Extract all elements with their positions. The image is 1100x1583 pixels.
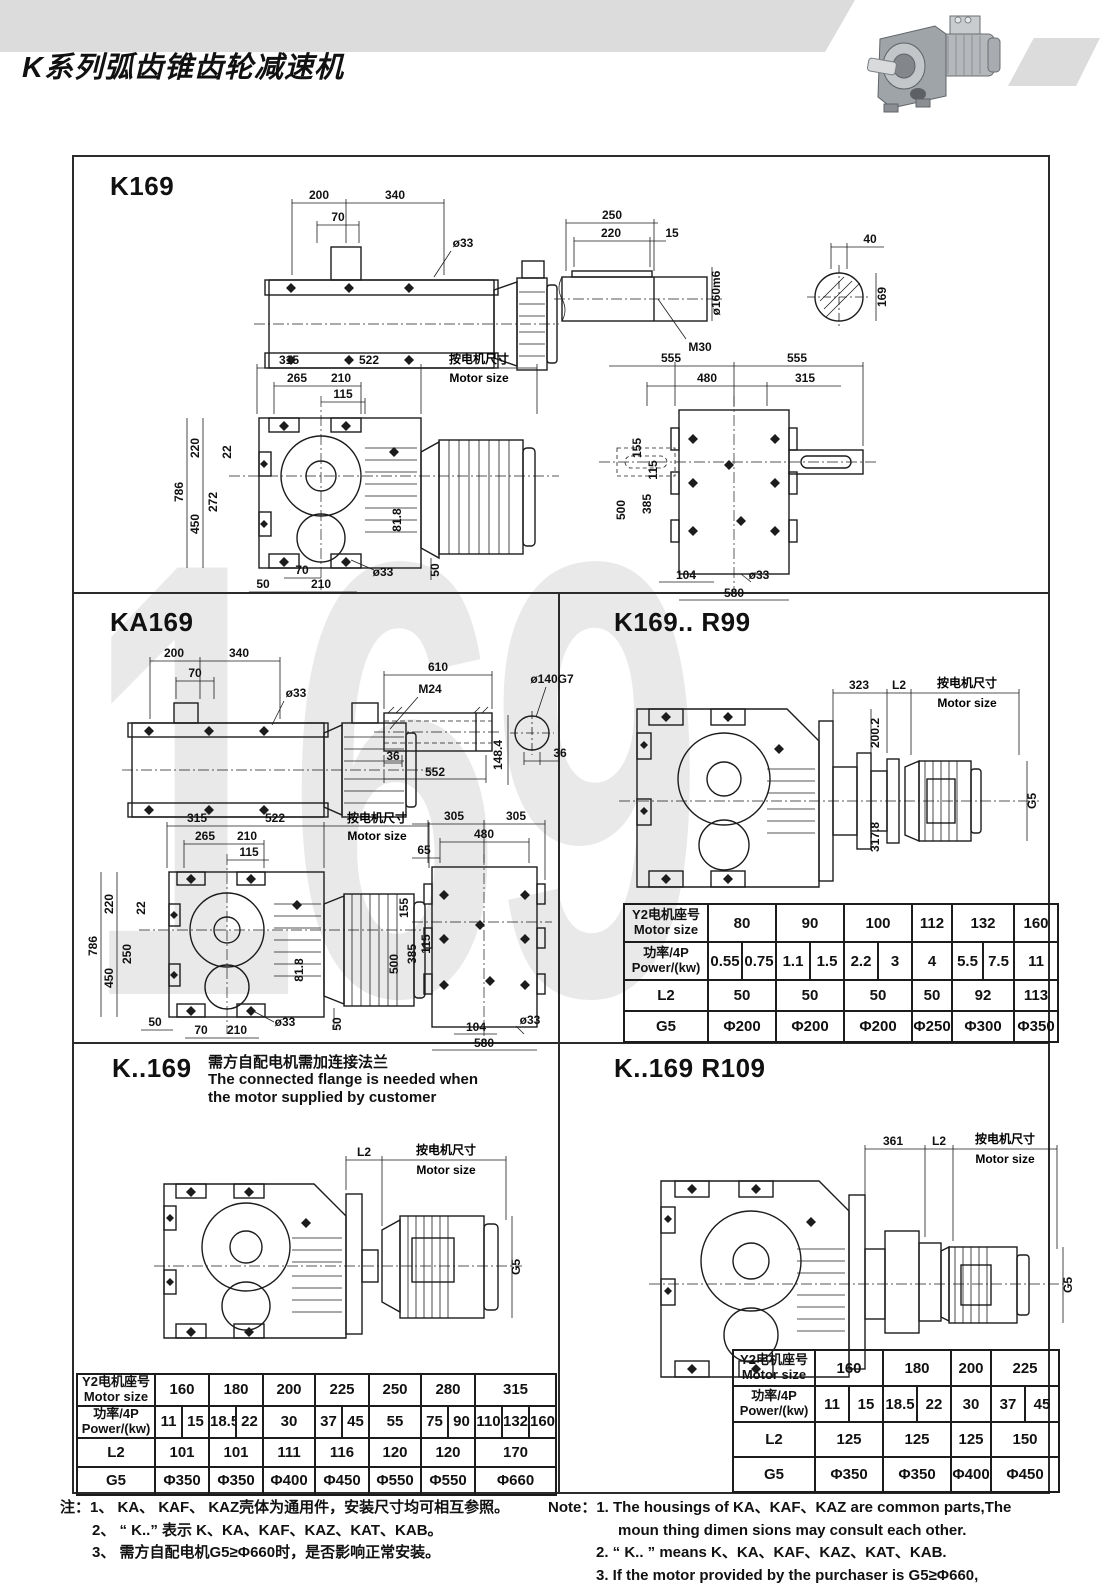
- motor-size-value: 112: [912, 904, 952, 942]
- dim-label: 70: [295, 563, 309, 577]
- motor-size-label-en: Motor size: [449, 371, 509, 385]
- header-g5: G5: [733, 1457, 815, 1492]
- k169-top-geometry: [599, 362, 879, 600]
- dim-label: 50: [256, 577, 270, 591]
- r109-geometry: [649, 1145, 1069, 1377]
- header-power: 功率/4PPower/(kw): [77, 1406, 155, 1438]
- dim-label: 115: [239, 845, 259, 859]
- dim-label: 220: [102, 894, 116, 914]
- dim-label: 70: [194, 1023, 208, 1037]
- g5-value: Φ300: [952, 1011, 1014, 1042]
- dim-label: 155: [630, 438, 644, 458]
- dim-label: 480: [697, 371, 717, 385]
- section-title-r99: K169.. R99: [614, 607, 751, 638]
- section-title-kcustom: K..169: [112, 1053, 192, 1084]
- dim-label: 500: [387, 954, 401, 974]
- kcustom-geometry: [154, 1156, 522, 1338]
- footnote-zh-line3: 3、 需方自配电机G5≥Φ660时，是否影响正常安装。: [60, 1542, 509, 1565]
- power-value: 37: [315, 1406, 342, 1438]
- power-value: 45: [342, 1406, 369, 1438]
- g5-value: Φ400: [263, 1467, 315, 1495]
- header-motor-size: Y2电机座号Motor size: [77, 1374, 155, 1406]
- dim-label: 70: [331, 210, 345, 224]
- dim-label: 50: [428, 563, 442, 577]
- g5-value: Φ350: [209, 1467, 263, 1495]
- r99-drawing: 323 L2 按电机尺寸 Motor size 200.2 317.8 G5: [619, 649, 1049, 909]
- dim-label: 22: [220, 445, 234, 459]
- motor-size-value: 225: [315, 1374, 369, 1406]
- r99-spec-table: Y2电机座号Motor size 80 90 100 112 132 160 功…: [623, 903, 1059, 1043]
- ka169-shaft-geometry: [374, 671, 560, 785]
- dim-label: L2: [932, 1134, 946, 1148]
- dim-label: 272: [206, 492, 220, 512]
- power-value: 11: [815, 1386, 849, 1422]
- motor-size-value: 100: [844, 904, 912, 942]
- ka169-top-view-drawing: 305 305 480 65 155 385 115 500 104 ø33 5…: [392, 812, 557, 1057]
- k169-side-geometry: [254, 199, 559, 370]
- g5-value: Φ350: [815, 1457, 883, 1492]
- header-l2: L2: [77, 1438, 155, 1467]
- dim-label: ø33: [275, 1015, 296, 1029]
- power-value: 15: [849, 1386, 883, 1422]
- dim-label: ø33: [749, 568, 770, 582]
- dim-label: ø140G7: [530, 672, 574, 686]
- dim-label: 200: [164, 646, 184, 660]
- dim-label: 22: [134, 901, 148, 915]
- l2-value: 150: [991, 1422, 1059, 1457]
- footnote-en-line1b: moun thing dimen sions may consult each …: [548, 1520, 1011, 1543]
- header-l2: L2: [624, 980, 708, 1011]
- kcustom-drawing: L2 按电机尺寸 Motor size G5: [154, 1142, 524, 1357]
- dim-label: ø33: [373, 565, 394, 579]
- power-value: 18.5: [883, 1386, 917, 1422]
- motor-size-value: 90: [776, 904, 844, 942]
- power-value: 4: [912, 942, 952, 980]
- power-value: 5.5: [952, 942, 983, 980]
- section-title-k169: K169: [110, 171, 174, 202]
- footnote-en-line2: 2. “ K.. ” means K、KA、KAF、KAZ、KAT、KAB.: [548, 1542, 1011, 1565]
- l2-value: 101: [155, 1438, 209, 1467]
- section-title-r109: K..169 R109: [614, 1053, 765, 1084]
- g5-value: Φ200: [844, 1011, 912, 1042]
- l2-value: 125: [951, 1422, 991, 1457]
- gearmotor-illustration: [867, 16, 1000, 112]
- dim-label: 50: [148, 1015, 162, 1029]
- dim-label: 786: [86, 936, 100, 956]
- header-g5: G5: [77, 1467, 155, 1495]
- g5-value: Φ350: [883, 1457, 951, 1492]
- g5-value: Φ250: [912, 1011, 952, 1042]
- k169-side-view-drawing: 200 340 70 ø33: [229, 185, 559, 380]
- power-value: 30: [263, 1406, 315, 1438]
- page-title: K系列弧齿锥齿轮减速机: [22, 44, 344, 86]
- dim-label: 104: [466, 1020, 486, 1034]
- l2-value: 170: [475, 1438, 556, 1467]
- motor-size-value: 160: [155, 1374, 209, 1406]
- motor-size-value: 200: [263, 1374, 315, 1406]
- power-value: 75: [421, 1406, 448, 1438]
- header-band-right: [1008, 38, 1100, 86]
- g5-value: Φ350: [1014, 1011, 1058, 1042]
- power-value: 11: [155, 1406, 182, 1438]
- motor-size-value: 132: [952, 904, 1014, 942]
- dim-label: 115: [333, 387, 353, 401]
- kcustom-note-en-line2: the motor supplied by customer: [208, 1089, 478, 1107]
- dim-label: 115: [646, 460, 660, 480]
- l2-value: 50: [912, 980, 952, 1011]
- dim-label: 450: [188, 514, 202, 534]
- dim-label: 210: [311, 577, 331, 591]
- power-value: 22: [236, 1406, 263, 1438]
- k169-top-view-drawing: 555 555 480 315 155 115 385 500 104 ø33 …: [579, 352, 919, 607]
- motor-size-value: 80: [708, 904, 776, 942]
- power-value: 11: [1014, 942, 1058, 980]
- dim-label: 210: [227, 1023, 247, 1037]
- dim-label: 250: [120, 944, 134, 964]
- header-g5: G5: [624, 1011, 708, 1042]
- dim-label: 155: [397, 898, 411, 918]
- dim-label: 220: [601, 226, 621, 240]
- dim-label: 340: [385, 188, 405, 202]
- l2-value: 125: [815, 1422, 883, 1457]
- motor-size-label-zh: 按电机尺寸: [416, 1142, 476, 1157]
- k169-shaft-detail-drawing: 250 220 15 ø160m6 M30 40 169: [554, 197, 934, 362]
- dim-label: 50: [330, 1017, 344, 1031]
- kcustom-note-zh: 需方自配电机需加连接法兰: [208, 1051, 388, 1072]
- dim-label: 148.4: [491, 740, 505, 770]
- ka169-front-geometry: [101, 822, 429, 1038]
- dim-label: 265: [287, 371, 307, 385]
- power-value: 0.75: [742, 942, 776, 980]
- dim-label: M24: [418, 682, 442, 696]
- dim-label: 81.8: [390, 508, 404, 532]
- dim-label: L2: [892, 678, 906, 692]
- dim-label: 610: [428, 660, 448, 674]
- motor-size-value: 160: [1014, 904, 1058, 942]
- g5-value: Φ200: [776, 1011, 844, 1042]
- power-value: 18.5: [209, 1406, 236, 1438]
- motor-size-value: 225: [991, 1350, 1059, 1386]
- dim-label: 305: [506, 809, 526, 823]
- dim-label: 385: [405, 944, 419, 964]
- motor-size-label-en: Motor size: [937, 696, 997, 710]
- l2-value: 113: [1014, 980, 1058, 1011]
- power-value: 22: [917, 1386, 951, 1422]
- catalog-page: K系列弧齿锥齿轮减速机 169 K169: [0, 0, 1100, 1583]
- header-motor-size: Y2电机座号Motor size: [624, 904, 708, 942]
- l2-value: 92: [952, 980, 1014, 1011]
- power-value: 160: [529, 1406, 556, 1438]
- dim-label: 315: [279, 353, 299, 367]
- l2-value: 50: [776, 980, 844, 1011]
- motor-size-label-en: Motor size: [416, 1163, 476, 1177]
- dim-label: 65: [417, 843, 431, 857]
- dim-label: 522: [359, 353, 379, 367]
- power-value: 30: [951, 1386, 991, 1422]
- dim-label: 385: [640, 494, 654, 514]
- ka169-front-view-drawing: 315 522 按电机尺寸 Motor size 265 210 115 786…: [89, 812, 429, 1042]
- dim-label: 500: [614, 500, 628, 520]
- g5-value: Φ200: [708, 1011, 776, 1042]
- dim-label: 210: [237, 829, 257, 843]
- dim-label: 315: [795, 371, 815, 385]
- motor-size-value: 250: [369, 1374, 421, 1406]
- motor-size-value: 315: [475, 1374, 556, 1406]
- motor-size-label-en: Motor size: [975, 1152, 1035, 1166]
- g5-value: Φ550: [421, 1467, 475, 1495]
- dim-label: 317.8: [868, 822, 882, 852]
- footnote-zh-line2: 2、 “ K..” 表示 K、KA、KAF、KAZ、KAT、KAB。: [60, 1520, 509, 1543]
- footnote-en-line3: 3. If the motor provided by the purchase…: [548, 1565, 1011, 1583]
- k169-front-view-drawing: 315 522 按电机尺寸 Motor size 265 210 115 786…: [169, 352, 569, 597]
- power-value: 1.5: [810, 942, 844, 980]
- dim-label: 36: [386, 749, 400, 763]
- dim-label: 361: [883, 1134, 903, 1148]
- g5-value: Φ660: [475, 1467, 556, 1495]
- dim-label: 265: [195, 829, 215, 843]
- dim-label: 552: [425, 765, 445, 779]
- dim-label: 200.2: [868, 718, 882, 748]
- power-value: 45: [1025, 1386, 1059, 1422]
- ka169-shaft-detail-drawing: 610 M24 36 552 ø140G7 36 148.4: [374, 655, 574, 805]
- dim-label: 340: [229, 646, 249, 660]
- power-value: 15: [182, 1406, 209, 1438]
- dim-label: 40: [863, 232, 877, 246]
- dim-label: G5: [1061, 1277, 1075, 1293]
- l2-value: 50: [844, 980, 912, 1011]
- dim-label: 555: [787, 351, 807, 365]
- dim-label: 210: [331, 371, 351, 385]
- dim-label: G5: [509, 1259, 523, 1275]
- power-value: 55: [369, 1406, 421, 1438]
- dim-label: 70: [188, 666, 202, 680]
- power-value: 37: [991, 1386, 1025, 1422]
- l2-value: 50: [708, 980, 776, 1011]
- l2-value: 116: [315, 1438, 369, 1467]
- dim-label: 786: [172, 482, 186, 502]
- dim-label: ø160m6: [709, 270, 723, 315]
- motor-size-value: 200: [951, 1350, 991, 1386]
- g5-value: Φ450: [991, 1457, 1059, 1492]
- dim-label: 555: [661, 351, 681, 365]
- dim-label: 250: [602, 208, 622, 222]
- dim-label: 15: [665, 226, 679, 240]
- motor-size-value: 180: [209, 1374, 263, 1406]
- l2-value: 125: [883, 1422, 951, 1457]
- power-value: 7.5: [983, 942, 1014, 980]
- motor-size-label-zh: 按电机尺寸: [975, 1131, 1035, 1146]
- dim-label: 580: [724, 586, 744, 600]
- dim-label: 305: [444, 809, 464, 823]
- l2-value: 111: [263, 1438, 315, 1467]
- header-power: 功率/4PPower/(kw): [624, 942, 708, 980]
- power-value: 0.55: [708, 942, 742, 980]
- power-value: 2.2: [844, 942, 878, 980]
- g5-value: Φ450: [315, 1467, 369, 1495]
- l2-value: 120: [421, 1438, 475, 1467]
- footnote-zh-line1: 注：1、 KA、 KAF、 KAZ壳体为通用件，安装尺寸均可相互参照。: [60, 1497, 509, 1520]
- motor-size-label-zh: 按电机尺寸: [449, 351, 509, 366]
- dim-label: 450: [102, 968, 116, 988]
- l2-value: 120: [369, 1438, 421, 1467]
- r109-spec-table: Y2电机座号Motor size 160 180 200 225 功率/4PPo…: [732, 1349, 1060, 1493]
- content-frame: K169: [72, 155, 1050, 1494]
- gearmotor-photo: [850, 4, 1010, 119]
- dim-label: 522: [265, 811, 285, 825]
- kcustom-note-en: The connected flange is needed when the …: [208, 1071, 478, 1107]
- motor-size-value: 160: [815, 1350, 883, 1386]
- power-value: 132: [502, 1406, 529, 1438]
- dim-label: ø33: [520, 1013, 541, 1027]
- motor-size-label-zh: 按电机尺寸: [937, 675, 997, 690]
- dim-label: 580: [474, 1036, 494, 1050]
- g5-value: Φ400: [951, 1457, 991, 1492]
- dim-label: 323: [849, 678, 869, 692]
- motor-size-value: 280: [421, 1374, 475, 1406]
- footnotes-en: Note：1. The housings of KA、KAF、KAZ are c…: [548, 1497, 1011, 1583]
- dim-label: ø33: [453, 236, 474, 250]
- g5-value: Φ550: [369, 1467, 421, 1495]
- dim-label: 81.8: [292, 958, 306, 982]
- g5-value: Φ350: [155, 1467, 209, 1495]
- l2-value: 101: [209, 1438, 263, 1467]
- section-title-ka169: KA169: [110, 607, 193, 638]
- power-value: 110: [475, 1406, 502, 1438]
- dim-label: ø33: [286, 686, 307, 700]
- r99-geometry: [619, 689, 1039, 887]
- dim-label: 169: [875, 287, 889, 307]
- power-value: 1.1: [776, 942, 810, 980]
- header-l2: L2: [733, 1422, 815, 1457]
- footnotes-zh: 注：1、 KA、 KAF、 KAZ壳体为通用件，安装尺寸均可相互参照。 2、 “…: [60, 1497, 509, 1565]
- dim-label: 315: [187, 811, 207, 825]
- dim-label: 220: [188, 438, 202, 458]
- power-value: 90: [448, 1406, 475, 1438]
- footnote-en-line1: Note：1. The housings of KA、KAF、KAZ are c…: [548, 1497, 1011, 1520]
- power-value: 3: [878, 942, 912, 980]
- dim-label: G5: [1025, 793, 1039, 809]
- kcustom-note-en-line1: The connected flange is needed when: [208, 1071, 478, 1089]
- header-power: 功率/4PPower/(kw): [733, 1386, 815, 1422]
- dim-label: 104: [676, 568, 696, 582]
- dim-label: 480: [474, 827, 494, 841]
- header-motor-size: Y2电机座号Motor size: [733, 1350, 815, 1386]
- dim-label: L2: [357, 1145, 371, 1159]
- motor-size-value: 180: [883, 1350, 951, 1386]
- kcustom-spec-table: Y2电机座号Motor size 160 180 200 225 250 280…: [76, 1373, 557, 1496]
- dim-label: 36: [553, 746, 567, 760]
- dim-label: 200: [309, 188, 329, 202]
- k169-front-geometry: [187, 364, 559, 592]
- dim-label: 115: [419, 934, 433, 954]
